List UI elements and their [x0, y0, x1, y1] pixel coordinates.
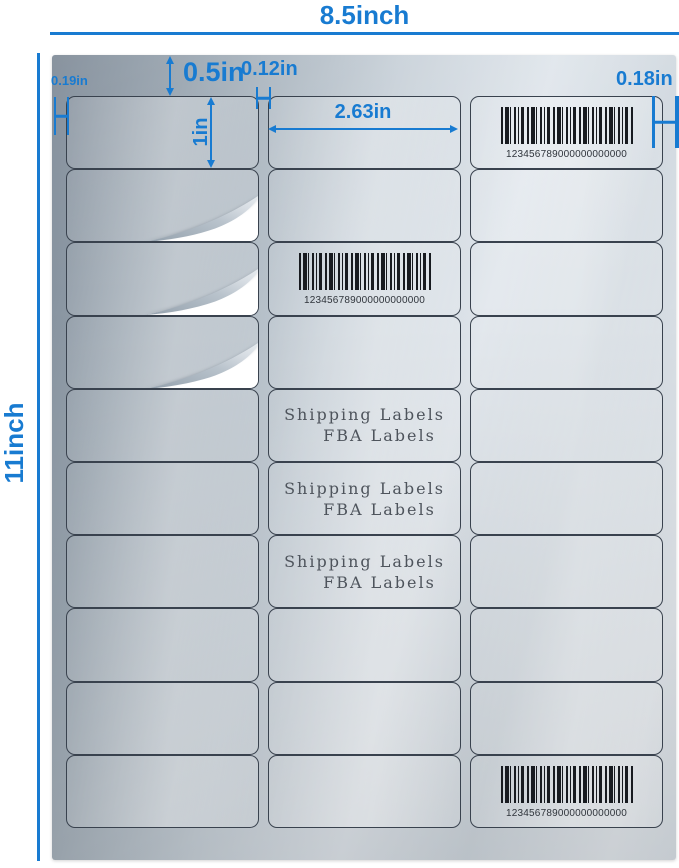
- fba-labels-text: FBA Labels: [269, 572, 460, 593]
- label-cell: [470, 535, 663, 608]
- sheet-width-dimension-line: [50, 32, 679, 35]
- right-margin-bracket: [652, 96, 679, 148]
- label-cell: [470, 316, 663, 389]
- barcode: 123456789000000000000: [269, 243, 460, 314]
- peel-corner-icon: [68, 318, 259, 389]
- label-cell: [66, 462, 259, 535]
- label-sheet-diagram: 8.5inch 11inch 123456789000000000000: [0, 0, 679, 868]
- label-cell-text: Shipping Labels FBA Labels: [268, 462, 461, 535]
- sheet-height-dimension-label: 11inch: [0, 393, 29, 493]
- label-cell: [66, 682, 259, 755]
- label-cell-peeling: [66, 316, 259, 389]
- peel-corner-icon: [68, 244, 259, 315]
- fba-labels-text: FBA Labels: [269, 425, 460, 446]
- label-width-arrow: [268, 123, 458, 135]
- label-cell-barcode: 123456789000000000000: [470, 96, 663, 169]
- barcode-number: 123456789000000000000: [506, 149, 627, 160]
- label-cell: [268, 682, 461, 755]
- label-cell: [470, 462, 663, 535]
- label-cell-peeling: [66, 242, 259, 315]
- barcode-number: 123456789000000000000: [304, 295, 425, 306]
- top-margin-arrow: [164, 56, 176, 96]
- right-margin-dimension-label: 0.18in: [616, 68, 673, 91]
- label-cell: [268, 608, 461, 681]
- label-cell: [66, 755, 259, 828]
- label-cell: [66, 535, 259, 608]
- left-margin-bracket: [54, 97, 69, 135]
- shipping-labels-text: Shipping Labels: [269, 404, 460, 425]
- label-cell: [268, 316, 461, 389]
- barcode-number: 123456789000000000000: [506, 808, 627, 819]
- column-gap-dimension-label: 0.12in: [241, 58, 298, 81]
- label-height-dimension-label: 1in: [190, 109, 212, 155]
- barcode-bars-icon: [299, 253, 431, 290]
- fba-labels-text: FBA Labels: [269, 499, 460, 520]
- label-sample-text: Shipping Labels FBA Labels: [269, 390, 460, 461]
- barcode-bars-icon: [501, 766, 633, 803]
- label-cell-peeling: [66, 169, 259, 242]
- shipping-labels-text: Shipping Labels: [269, 478, 460, 499]
- label-cell: [470, 608, 663, 681]
- label-sample-text: Shipping Labels FBA Labels: [269, 463, 460, 534]
- label-cell: [470, 682, 663, 755]
- label-cell-text: Shipping Labels FBA Labels: [268, 535, 461, 608]
- label-cell: [268, 169, 461, 242]
- label-cell: [470, 389, 663, 462]
- label-cell-barcode: 123456789000000000000: [470, 755, 663, 828]
- label-cell: [66, 389, 259, 462]
- label-sample-text: Shipping Labels FBA Labels: [269, 536, 460, 607]
- label-cell-barcode: 123456789000000000000: [268, 242, 461, 315]
- label-cell: [470, 242, 663, 315]
- label-cell: [66, 608, 259, 681]
- sheet-width-dimension-label: 8.5inch: [50, 0, 679, 31]
- top-margin-dimension-label: 0.5in: [183, 57, 245, 88]
- label-cell: [470, 169, 663, 242]
- label-cell-text: Shipping Labels FBA Labels: [268, 389, 461, 462]
- shipping-labels-text: Shipping Labels: [269, 551, 460, 572]
- label-width-dimension-label: 2.63in: [267, 101, 459, 124]
- label-cell: [66, 96, 259, 169]
- barcode: 123456789000000000000: [471, 97, 662, 168]
- barcode: 123456789000000000000: [471, 756, 662, 827]
- label-cell: [268, 755, 461, 828]
- label-sheet: 123456789000000000000 1234567890000: [52, 55, 676, 860]
- sheet-height-dimension-line: [37, 53, 40, 861]
- barcode-bars-icon: [501, 107, 633, 144]
- left-margin-dimension-label: 0.19in: [51, 73, 88, 88]
- peel-corner-icon: [68, 171, 259, 242]
